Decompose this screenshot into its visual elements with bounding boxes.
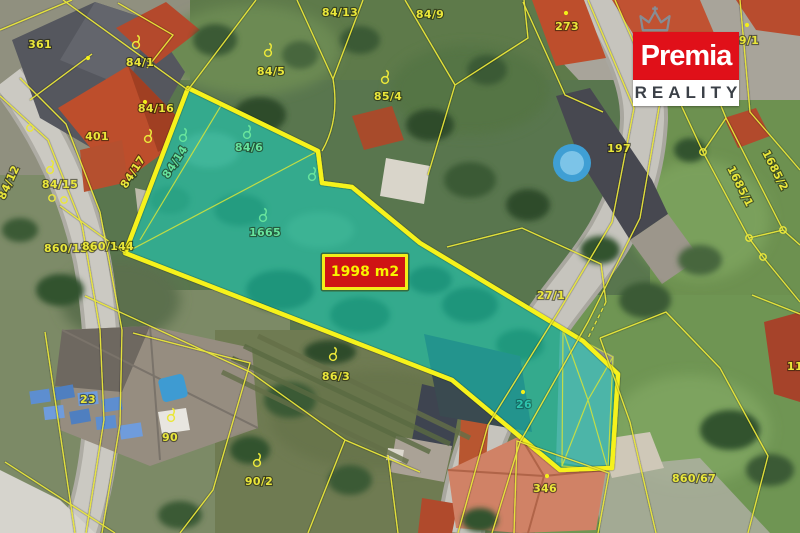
brand-name: Premia xyxy=(633,32,739,80)
parcel-label: 90 xyxy=(162,431,178,444)
parcel-label: 11 xyxy=(787,360,800,373)
area-label: 1998 m2 xyxy=(322,254,408,290)
listing-map-screenshot: 36184/140184/1684/1584/1284/17860/130860… xyxy=(0,0,800,533)
parcel-label: 86/3 xyxy=(322,370,350,383)
survey-dot-icon xyxy=(86,56,90,60)
parcel-label: 84/16 xyxy=(138,102,174,115)
parcel-label: 860/144 xyxy=(82,240,134,253)
parcel-label: 27/1 xyxy=(537,289,565,302)
parcel-label: 361 xyxy=(28,38,52,51)
parcel-label: 401 xyxy=(85,130,109,143)
premia-logo: Premia REALITY xyxy=(633,4,739,106)
parcel-label: 85/4 xyxy=(374,90,402,103)
parcel-label: 9/1 xyxy=(739,34,759,47)
parcel-label: 84/5 xyxy=(257,65,285,78)
parcel-label: 26 xyxy=(516,398,532,411)
parcel-label: 273 xyxy=(555,20,579,33)
parcel-label: 84/13 xyxy=(322,6,358,19)
parcel-label: 860/67 xyxy=(672,472,716,485)
survey-dot-icon xyxy=(745,23,749,27)
parcel-label: 84/6 xyxy=(235,141,263,154)
area-label-text: 1998 m2 xyxy=(331,264,399,280)
survey-dot-icon xyxy=(545,474,549,478)
crown-icon xyxy=(633,4,739,34)
brand-subtitle: REALITY xyxy=(633,80,739,106)
survey-dot-icon xyxy=(564,11,568,15)
parcel-label: 197 xyxy=(607,142,631,155)
parcel-label: 84/9 xyxy=(416,8,444,21)
parcel-label: 346 xyxy=(533,482,557,495)
parcel-label: 90/2 xyxy=(245,475,273,488)
parcel-label: 84/1 xyxy=(126,56,154,69)
parcel-label: 84/15 xyxy=(42,178,78,191)
survey-dot-icon xyxy=(521,390,525,394)
parcel-label: 23 xyxy=(80,393,96,406)
parcel-label: 1665 xyxy=(249,226,281,239)
